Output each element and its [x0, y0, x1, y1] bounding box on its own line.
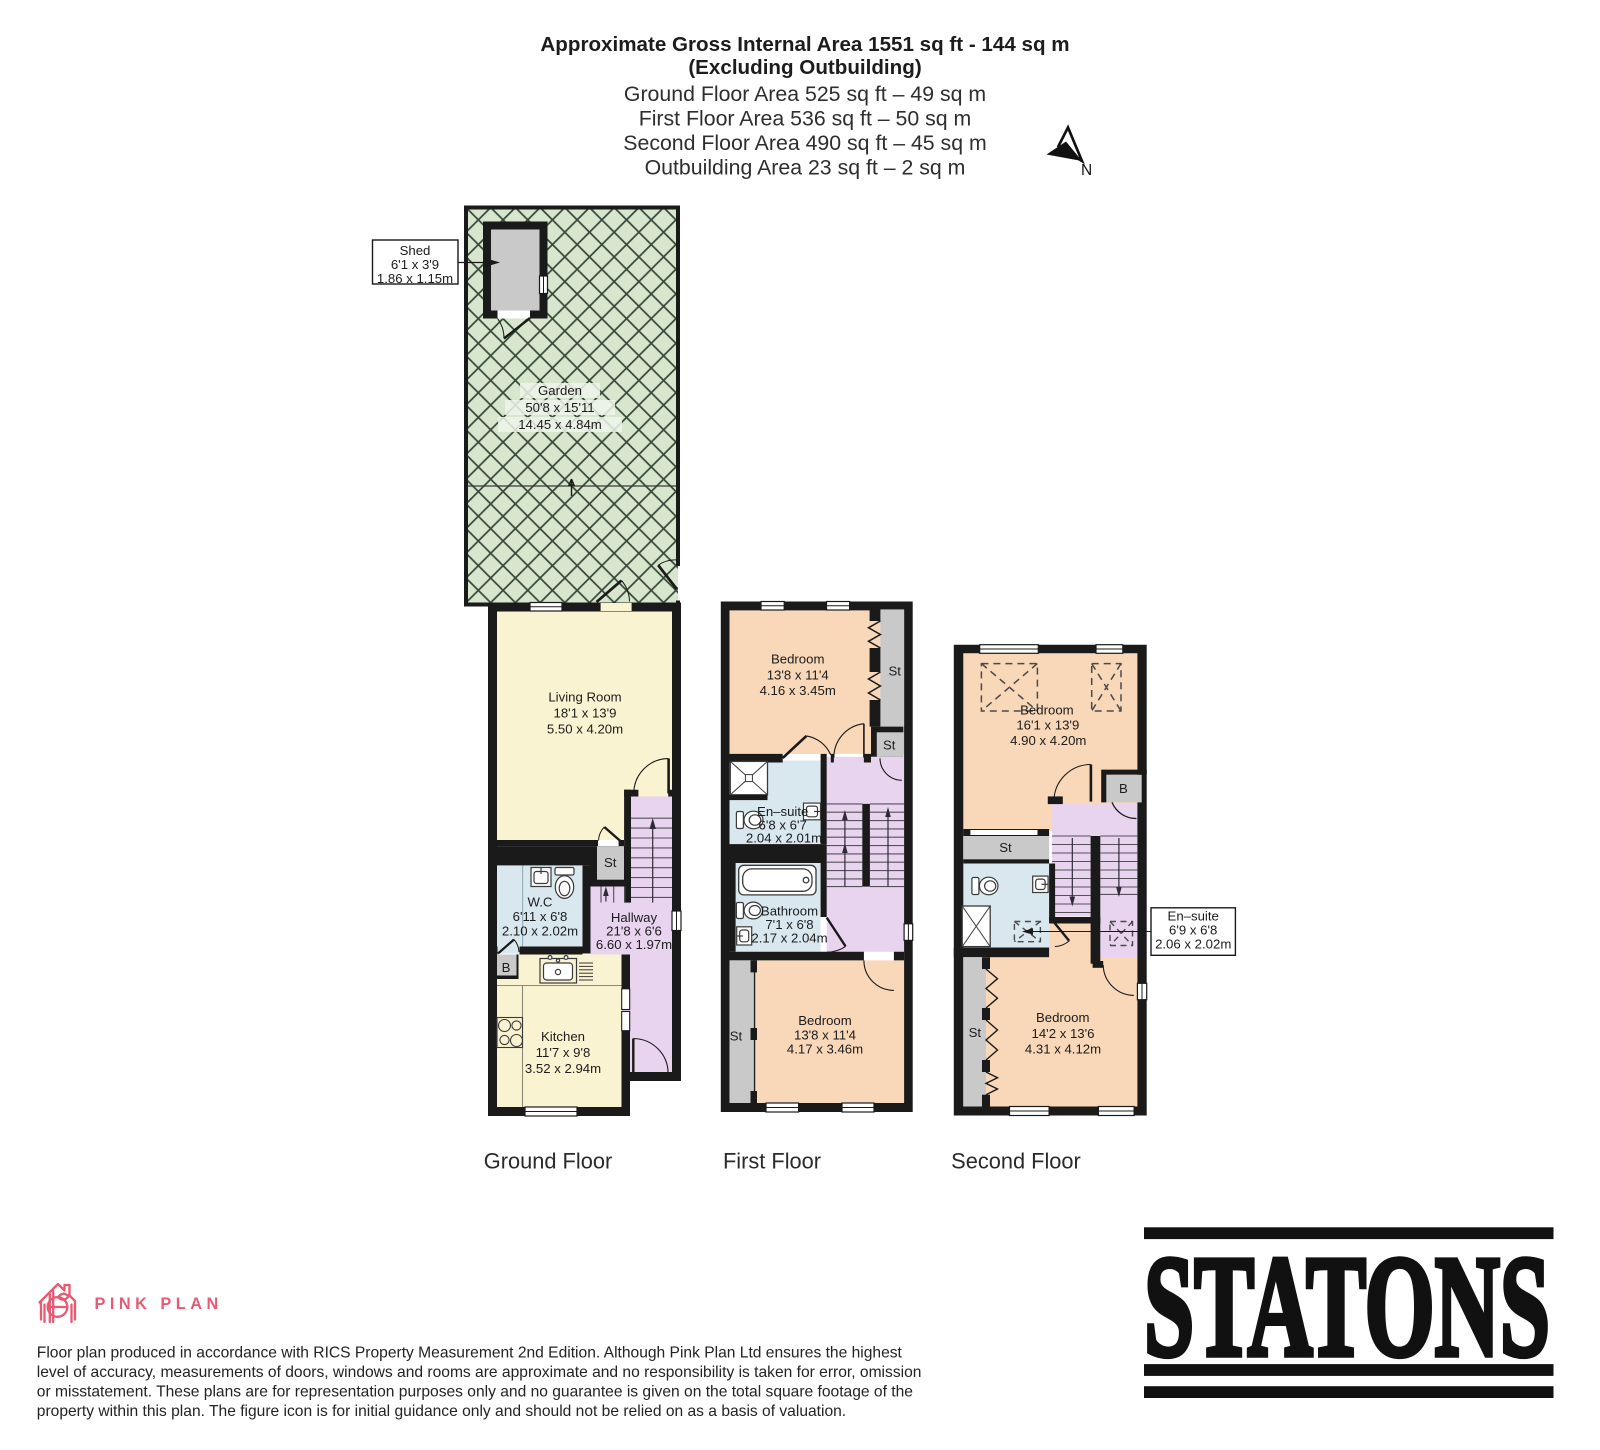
- svg-text:Bedroom: Bedroom: [798, 1013, 852, 1028]
- svg-text:Shed: Shed: [400, 243, 431, 258]
- svg-text:18'1 x 13'9: 18'1 x 13'9: [554, 706, 617, 721]
- svg-text:6'9 x 6'8: 6'9 x 6'8: [1169, 923, 1217, 938]
- svg-text:St: St: [604, 855, 617, 870]
- svg-text:St: St: [889, 664, 902, 679]
- svg-text:5.50 x 4.20m: 5.50 x 4.20m: [547, 722, 623, 737]
- svg-text:(Excluding Outbuilding): (Excluding Outbuilding): [688, 56, 921, 79]
- svg-text:B: B: [502, 960, 511, 975]
- svg-text:Bedroom: Bedroom: [1020, 702, 1074, 717]
- svg-text:Garden: Garden: [538, 383, 582, 398]
- svg-text:14.45 x 4.84m: 14.45 x 4.84m: [518, 417, 602, 432]
- svg-text:St: St: [999, 840, 1012, 855]
- svg-text:First Floor: First Floor: [723, 1149, 821, 1174]
- svg-text:Ground Floor Area 525 sq ft –: Ground Floor Area 525 sq ft – 49 sq m: [624, 82, 986, 106]
- svg-text:STATONS: STATONS: [1144, 1227, 1550, 1387]
- svg-text:Second Floor Area 490 sq ft –: Second Floor Area 490 sq ft – 45 sq m: [623, 131, 986, 155]
- svg-text:4.16 x 3.45m: 4.16 x 3.45m: [760, 683, 836, 698]
- svg-text:13'8 x 11'4: 13'8 x 11'4: [767, 667, 829, 682]
- svg-text:Floor plan produced in accorda: Floor plan produced in accordance with R…: [37, 1344, 903, 1361]
- svg-text:or misstatement. These plans a: or misstatement. These plans are for rep…: [37, 1384, 913, 1401]
- svg-text:N: N: [1081, 162, 1092, 179]
- svg-text:property within this plan. The: property within this plan. The figure ic…: [37, 1403, 846, 1420]
- svg-text:6'11 x 6'8: 6'11 x 6'8: [513, 909, 568, 924]
- svg-text:level of accuracy, measurement: level of accuracy, measurements of doors…: [37, 1364, 922, 1381]
- svg-text:16'1 x 13'9: 16'1 x 13'9: [1016, 717, 1079, 732]
- svg-text:50'8 x 15'11: 50'8 x 15'11: [525, 400, 594, 415]
- svg-text:Outbuilding Area 23 sq ft – 2: Outbuilding Area 23 sq ft – 2 sq m: [645, 156, 966, 180]
- svg-text:En–suite: En–suite: [1168, 909, 1219, 924]
- svg-text:6'1 x 3'9: 6'1 x 3'9: [391, 257, 439, 272]
- svg-text:Second Floor: Second Floor: [951, 1149, 1081, 1174]
- svg-text:4.31 x 4.12m: 4.31 x 4.12m: [1025, 1042, 1101, 1057]
- svg-text:Ground Floor: Ground Floor: [484, 1149, 612, 1174]
- svg-text:St: St: [730, 1029, 743, 1044]
- svg-text:3.52 x 2.94m: 3.52 x 2.94m: [525, 1061, 601, 1076]
- svg-text:St: St: [883, 738, 896, 753]
- svg-text:W.C: W.C: [528, 895, 553, 910]
- svg-text:Kitchen: Kitchen: [541, 1029, 585, 1044]
- svg-text:11'7 x 9'8: 11'7 x 9'8: [536, 1045, 591, 1060]
- svg-text:13'8 x 11'4: 13'8 x 11'4: [794, 1027, 856, 1042]
- svg-text:Approximate Gross Internal Are: Approximate Gross Internal Area 1551 sq …: [540, 33, 1069, 56]
- svg-text:2.10 x 2.02m: 2.10 x 2.02m: [502, 924, 578, 939]
- svg-text:Living Room: Living Room: [548, 690, 621, 705]
- svg-text:14'2 x 13'6: 14'2 x 13'6: [1032, 1026, 1095, 1041]
- svg-text:B: B: [1119, 781, 1128, 796]
- svg-text:2.17 x 2.04m: 2.17 x 2.04m: [751, 931, 827, 946]
- svg-text:Bedroom: Bedroom: [1036, 1010, 1090, 1025]
- svg-text:First Floor Area 536 sq ft – 5: First Floor Area 536 sq ft – 50 sq m: [639, 107, 972, 131]
- svg-text:4.90 x 4.20m: 4.90 x 4.20m: [1010, 733, 1086, 748]
- svg-text:1.86 x 1.15m: 1.86 x 1.15m: [377, 271, 453, 286]
- svg-text:2.06 x 2.02m: 2.06 x 2.02m: [1155, 937, 1231, 952]
- svg-text:2.04 x 2.01m: 2.04 x 2.01m: [746, 831, 822, 846]
- svg-text:4.17 x 3.46m: 4.17 x 3.46m: [787, 1041, 863, 1056]
- svg-text:6.60 x 1.97m: 6.60 x 1.97m: [596, 937, 672, 952]
- svg-text:Bedroom: Bedroom: [771, 652, 825, 667]
- svg-text:PINK PLAN: PINK PLAN: [95, 1295, 223, 1313]
- svg-text:St: St: [969, 1025, 982, 1040]
